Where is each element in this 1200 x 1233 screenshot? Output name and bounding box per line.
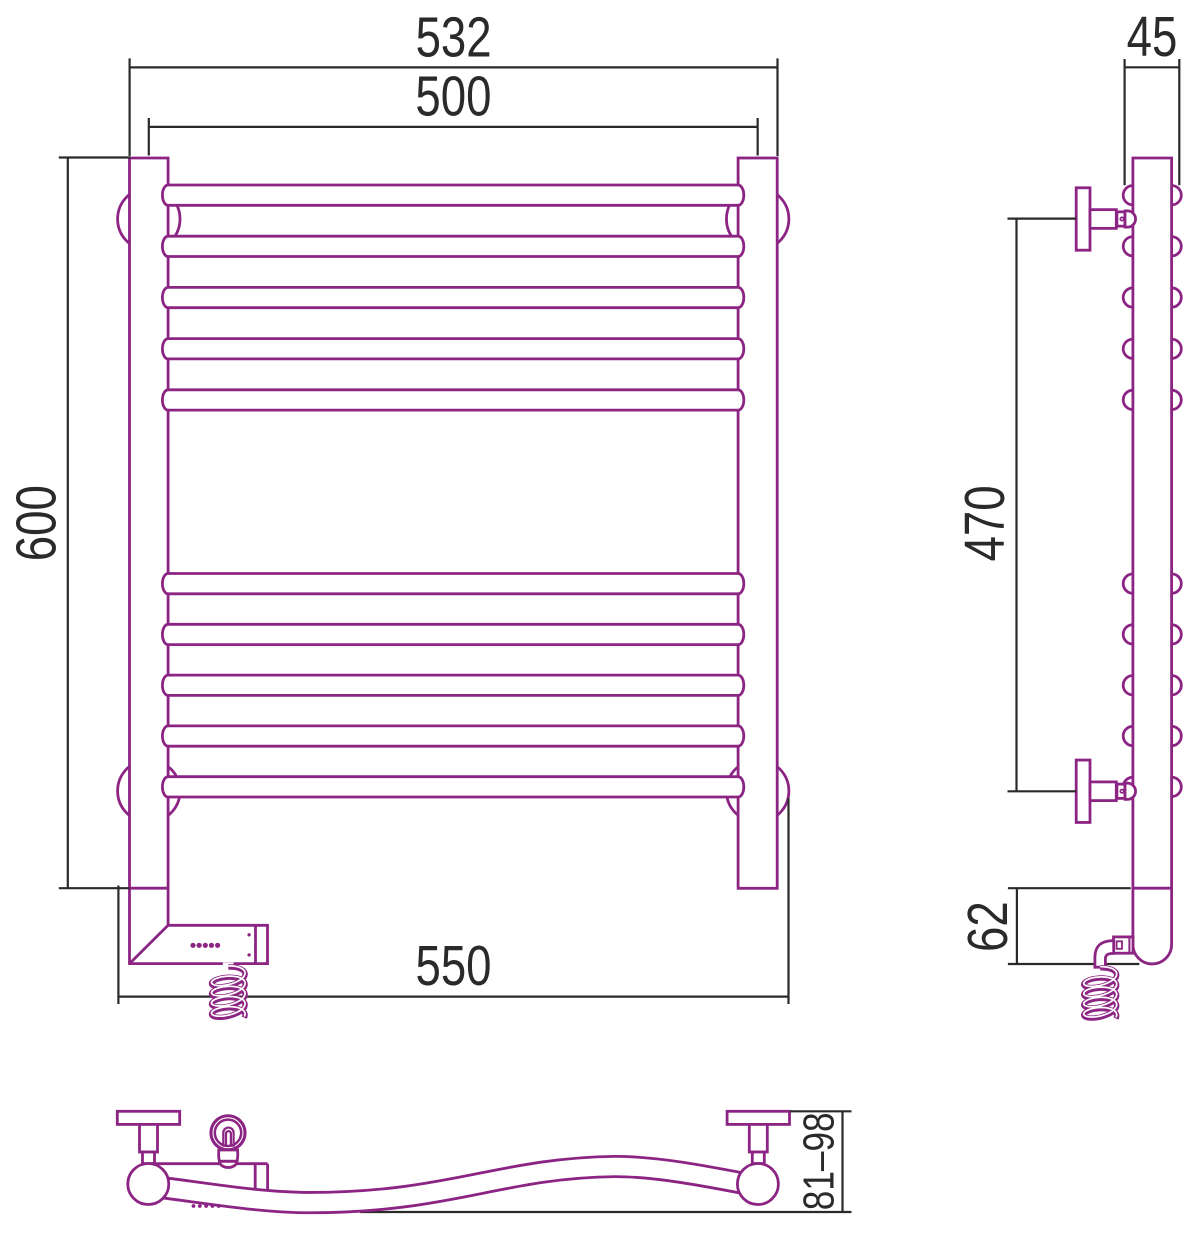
- svg-text:532: 532: [416, 5, 492, 69]
- svg-text:550: 550: [415, 933, 491, 997]
- svg-text:600: 600: [4, 485, 68, 561]
- svg-text:470: 470: [952, 485, 1016, 561]
- svg-text:81–98: 81–98: [795, 1112, 844, 1210]
- svg-text:500: 500: [415, 64, 491, 128]
- svg-text:45: 45: [1127, 4, 1178, 68]
- svg-text:62: 62: [955, 901, 1019, 952]
